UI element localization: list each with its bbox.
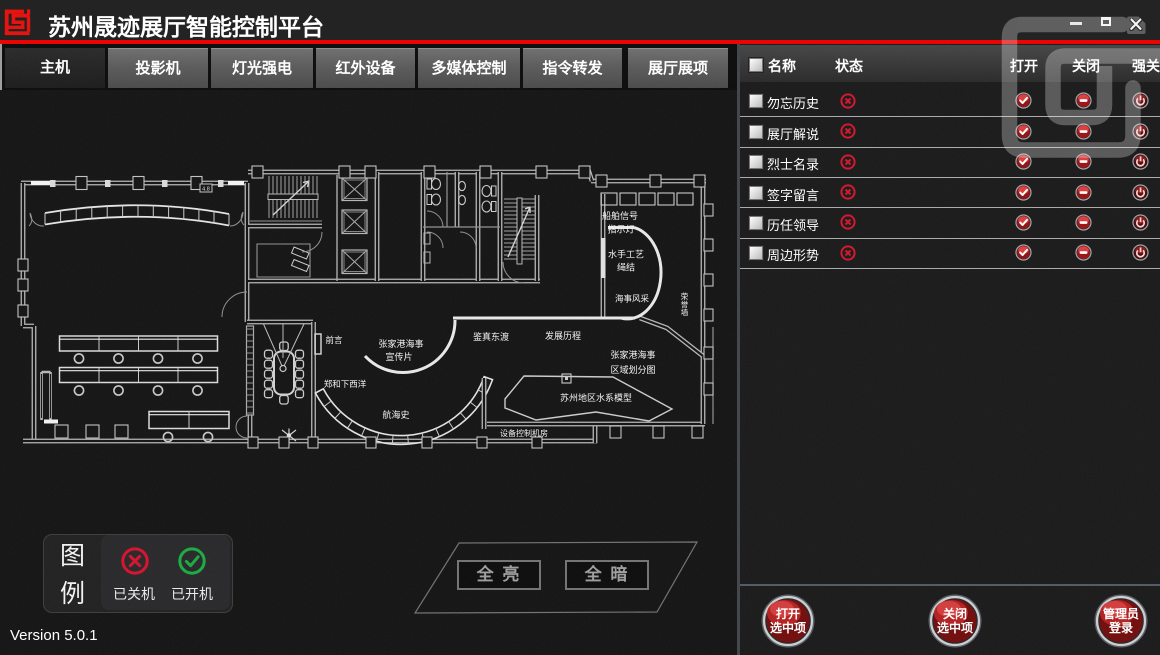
svg-text:鉴真东渡: 鉴真东渡 — [473, 331, 509, 342]
svg-text:前言: 前言 — [325, 335, 343, 345]
svg-text:水手工艺: 水手工艺 — [608, 249, 644, 260]
svg-text:绳结: 绳结 — [617, 262, 635, 273]
svg-text:指示灯: 指示灯 — [607, 224, 634, 235]
svg-text:发展历程: 发展历程 — [545, 330, 581, 341]
svg-text:船舶信号: 船舶信号 — [602, 210, 638, 221]
svg-text:设备控制机房: 设备控制机房 — [500, 428, 548, 438]
svg-text:张家港海事: 张家港海事 — [378, 338, 423, 349]
svg-text:航海史: 航海史 — [382, 409, 409, 420]
svg-text:海事风采: 海事风采 — [615, 294, 650, 304]
svg-text:4.8: 4.8 — [202, 187, 210, 193]
svg-text:区域划分图: 区域划分图 — [610, 364, 655, 375]
svg-text:荣誉墙: 荣誉墙 — [681, 291, 689, 317]
svg-text:苏州地区水系模型: 苏州地区水系模型 — [560, 392, 632, 403]
svg-text:宣传片: 宣传片 — [385, 351, 412, 362]
svg-text:张家港海事: 张家港海事 — [610, 349, 655, 360]
svg-text:郑和下西洋: 郑和下西洋 — [324, 379, 367, 389]
